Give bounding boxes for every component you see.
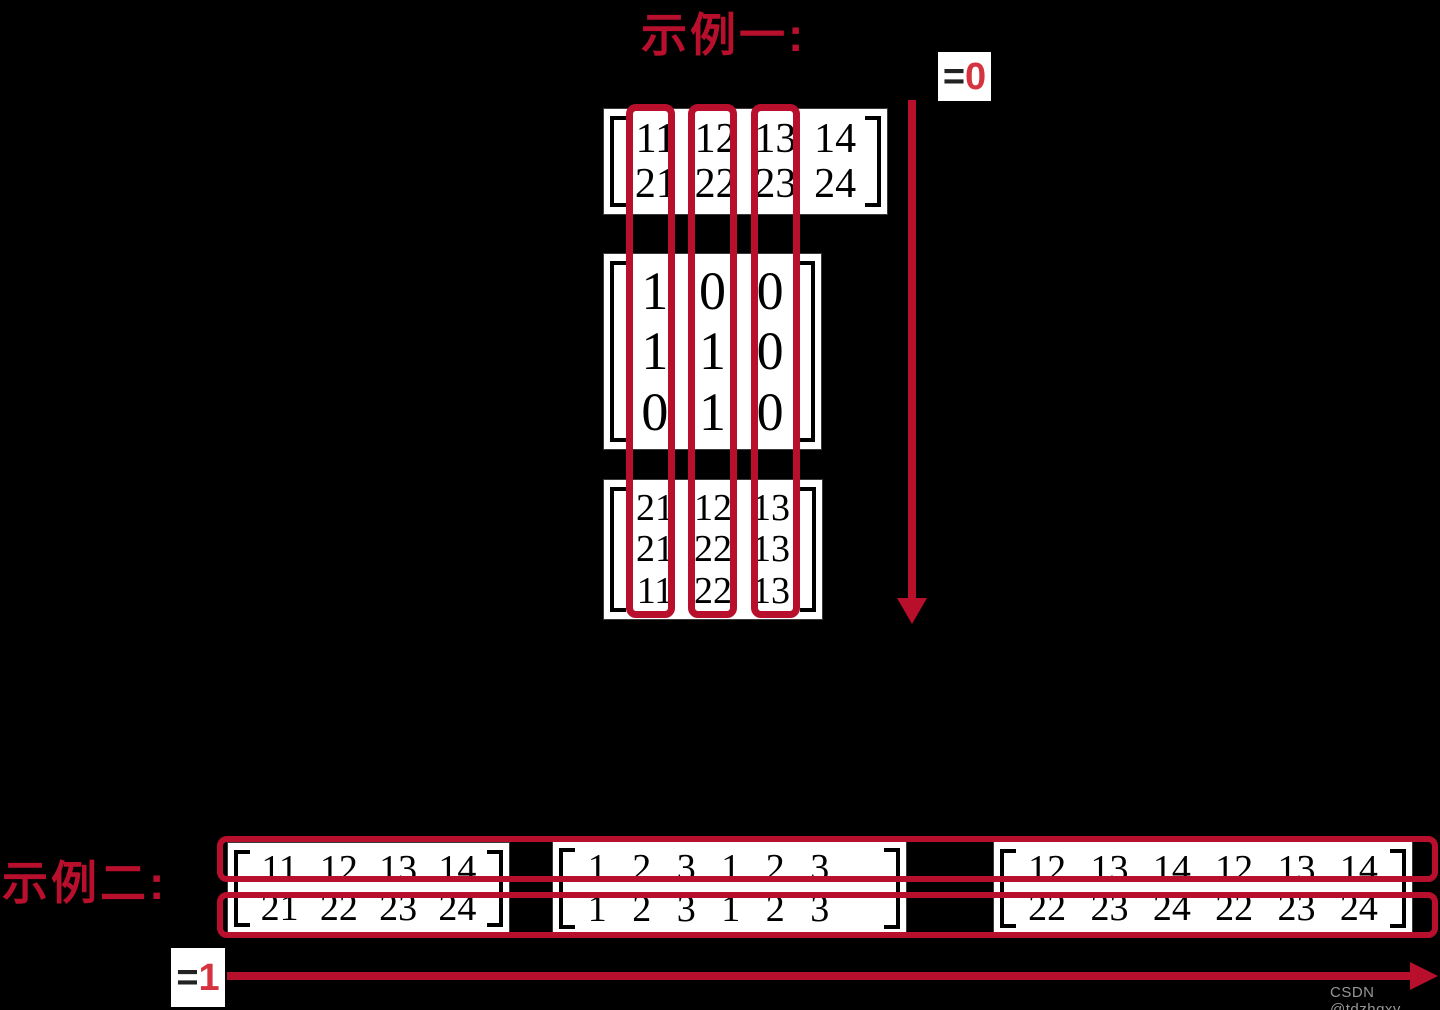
left-bracket bbox=[610, 116, 626, 207]
down-arrow-icon bbox=[897, 598, 927, 624]
dim-value: 0 bbox=[965, 58, 986, 96]
example2-title: 示例二: bbox=[2, 858, 167, 909]
left-bracket bbox=[610, 261, 626, 442]
right-bracket bbox=[800, 487, 816, 612]
row-highlight-2 bbox=[217, 892, 1438, 938]
row-highlight-1 bbox=[217, 836, 1438, 882]
matrix-cell: 24 bbox=[814, 163, 856, 205]
dim-value: 1 bbox=[199, 959, 220, 997]
equals-sign: = bbox=[943, 58, 965, 96]
diagram-canvas: 示例一: =0 1112131421222324 100110010 21121… bbox=[0, 0, 1440, 1010]
right-bracket bbox=[799, 261, 815, 442]
matrix-cell: 14 bbox=[814, 118, 856, 160]
dim1-arrow-line bbox=[227, 972, 1413, 980]
left-bracket bbox=[610, 487, 626, 612]
watermark: CSDN @tdzhqxy bbox=[1330, 984, 1440, 1010]
column-highlight-2 bbox=[688, 104, 737, 618]
column-highlight-1 bbox=[626, 104, 675, 618]
example1-title: 示例一: bbox=[641, 10, 806, 61]
equals-sign: = bbox=[176, 959, 198, 997]
right-bracket bbox=[865, 116, 881, 207]
example2-dim-label: =1 bbox=[171, 948, 225, 1007]
example1-dim-label: =0 bbox=[938, 52, 991, 101]
dim0-arrow-line bbox=[908, 100, 916, 600]
column-highlight-3 bbox=[751, 104, 800, 618]
